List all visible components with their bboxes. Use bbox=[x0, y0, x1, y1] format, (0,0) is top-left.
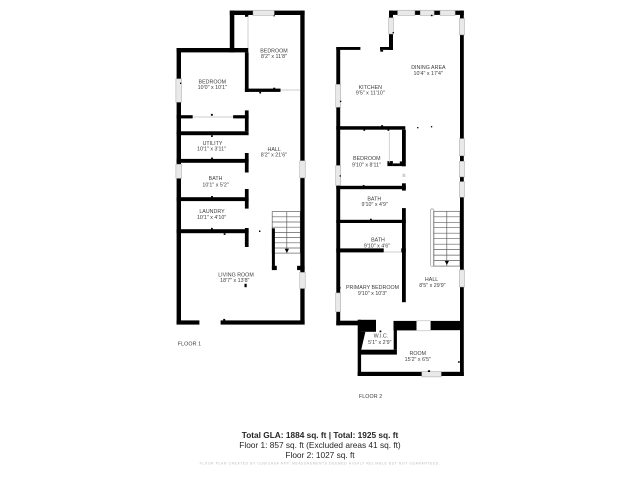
svg-text:8'2" x 11'8": 8'2" x 11'8" bbox=[261, 54, 287, 60]
svg-text:W.I.C.: W.I.C. bbox=[374, 334, 389, 340]
svg-text:Floor 2: 1027 sq. ft: Floor 2: 1027 sq. ft bbox=[285, 450, 355, 460]
svg-text:5'1" x 2'9": 5'1" x 2'9" bbox=[368, 340, 391, 346]
svg-text:Total GLA: 1884 sq. ft | Total: Total GLA: 1884 sq. ft | Total: 1925 sq.… bbox=[242, 430, 399, 440]
svg-text:9'10" x 10'3": 9'10" x 10'3" bbox=[358, 291, 387, 297]
svg-text:10'0" x 10'1": 10'0" x 10'1" bbox=[198, 85, 227, 91]
svg-text:10'4" x 17'4": 10'4" x 17'4" bbox=[414, 71, 443, 77]
svg-text:BATH: BATH bbox=[209, 176, 223, 182]
svg-text:HALL: HALL bbox=[425, 277, 438, 283]
svg-text:9'10" x 4'6": 9'10" x 4'6" bbox=[364, 244, 390, 250]
svg-text:BEDROOM: BEDROOM bbox=[353, 156, 381, 162]
svg-text:18'7" x 13'8": 18'7" x 13'8" bbox=[220, 278, 249, 284]
svg-text:8'5" x 29'9": 8'5" x 29'9" bbox=[419, 283, 445, 289]
svg-text:9'5" x 11'10": 9'5" x 11'10" bbox=[356, 91, 385, 97]
svg-text:8'2" x 21'6": 8'2" x 21'6" bbox=[261, 153, 287, 159]
svg-text:10'1" x 3'11": 10'1" x 3'11" bbox=[197, 147, 226, 153]
svg-text:10'1" x 5'2": 10'1" x 5'2" bbox=[202, 182, 228, 188]
svg-text:FLOOR 1: FLOOR 1 bbox=[178, 342, 201, 348]
svg-text:15'2" x 6'5": 15'2" x 6'5" bbox=[405, 357, 431, 363]
svg-text:9'10" x 4'9": 9'10" x 4'9" bbox=[362, 202, 388, 208]
svg-text:Floor 1: 857 sq. ft (Excluded: Floor 1: 857 sq. ft (Excluded areas 41 s… bbox=[239, 440, 401, 450]
svg-text:PRIMARY BEDROOM: PRIMARY BEDROOM bbox=[346, 285, 399, 291]
svg-text:10'1" x 4'10": 10'1" x 4'10" bbox=[197, 215, 226, 221]
svg-text:FLOOR PLAN CREATED BY CUBICASA: FLOOR PLAN CREATED BY CUBICASA APP. MEAS… bbox=[200, 461, 441, 465]
svg-text:9'10" x 8'11": 9'10" x 8'11" bbox=[352, 162, 381, 168]
svg-text:FLOOR 2: FLOOR 2 bbox=[359, 394, 382, 400]
